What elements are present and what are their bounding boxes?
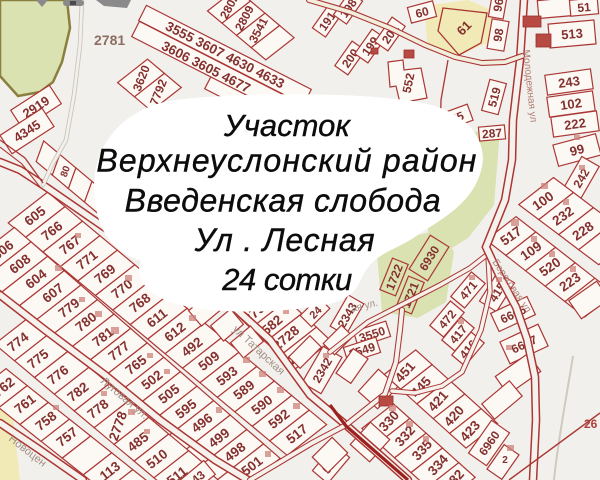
svg-text:287: 287 (481, 126, 502, 142)
svg-text:222: 222 (563, 115, 587, 133)
svg-text:2: 2 (502, 455, 508, 466)
svg-text:243: 243 (557, 73, 581, 91)
svg-text:51: 51 (577, 0, 592, 15)
svg-text:Введенская слобода: Введенская слобода (125, 183, 442, 219)
svg-text:24 сотки: 24 сотки (221, 262, 352, 297)
svg-text:96: 96 (490, 0, 506, 13)
svg-text:98: 98 (490, 27, 506, 43)
svg-text:2781: 2781 (94, 32, 125, 48)
svg-text:Верхнеуслонский район: Верхнеуслонский район (96, 143, 477, 179)
svg-text:26: 26 (584, 417, 598, 431)
svg-text:102: 102 (559, 95, 583, 113)
svg-text:513: 513 (561, 26, 584, 43)
svg-text:Ул . Лесная: Ул . Лесная (194, 222, 376, 258)
svg-text:Участок: Участок (223, 108, 351, 143)
